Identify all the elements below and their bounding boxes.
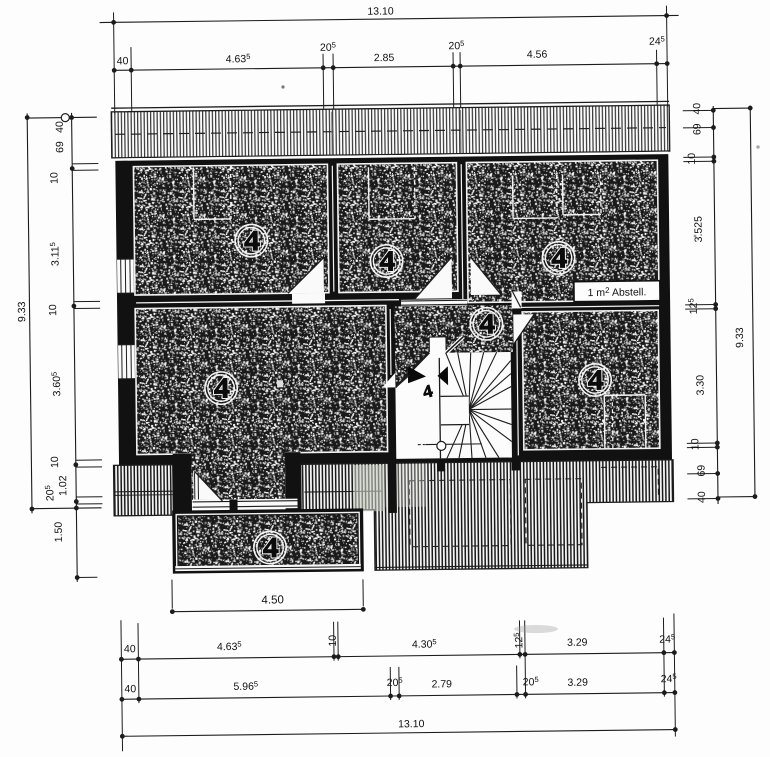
svg-text:10: 10 (49, 456, 61, 468)
svg-text:69: 69 (696, 465, 708, 477)
svg-text:40: 40 (124, 643, 136, 655)
svg-text:9.33: 9.33 (734, 327, 746, 348)
svg-text:40: 40 (124, 683, 136, 695)
svg-text:40: 40 (54, 121, 66, 133)
svg-text:3.30: 3.30 (694, 375, 706, 396)
svg-text:9.33: 9.33 (16, 301, 28, 322)
svg-text:10: 10 (327, 635, 339, 647)
svg-text:10: 10 (689, 438, 701, 450)
svg-text:40: 40 (117, 55, 129, 67)
svg-text:40: 40 (691, 103, 703, 115)
svg-text:10: 10 (48, 172, 60, 184)
svg-text:2.79: 2.79 (431, 678, 452, 690)
svg-text:3.525: 3.525 (693, 216, 705, 243)
svg-text:13.10: 13.10 (398, 718, 425, 730)
svg-text:1.50: 1.50 (53, 522, 65, 543)
svg-text:1.02: 1.02 (57, 475, 69, 496)
svg-text:40: 40 (696, 491, 708, 503)
svg-text:4.56: 4.56 (527, 49, 548, 61)
svg-text:1 m2 Abstell.: 1 m2 Abstell. (588, 285, 647, 299)
svg-text:3.29: 3.29 (567, 637, 588, 649)
svg-text:2.85: 2.85 (374, 52, 395, 64)
svg-text:13.10: 13.10 (367, 5, 394, 17)
svg-text:10: 10 (686, 153, 698, 165)
svg-text:3.29: 3.29 (567, 677, 588, 689)
svg-text:4.50: 4.50 (261, 594, 284, 606)
svg-text:10: 10 (47, 304, 59, 316)
svg-text:69: 69 (54, 141, 66, 153)
svg-text:69: 69 (691, 123, 703, 135)
